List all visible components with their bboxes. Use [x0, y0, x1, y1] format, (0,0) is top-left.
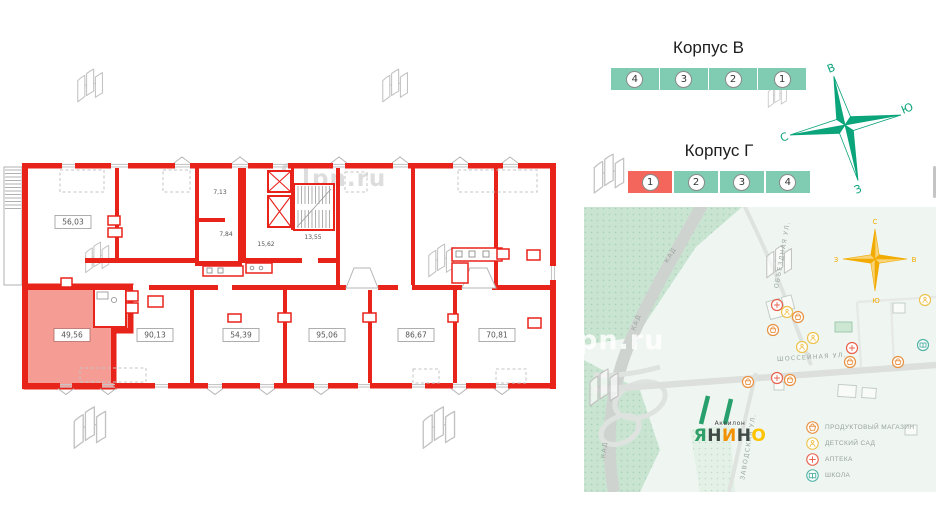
- section-v-4[interactable]: 4: [611, 68, 659, 90]
- room-label[interactable]: 70,81: [479, 329, 515, 342]
- svg-text:90,13: 90,13: [144, 331, 166, 340]
- map-watermark: pn.ru: [584, 325, 664, 356]
- building-sketch-icon: [74, 407, 105, 448]
- room-label[interactable]: 56,03: [55, 216, 91, 229]
- school-book-icon: [806, 469, 819, 482]
- map-compass-south: Ю: [872, 297, 880, 305]
- room-label: 7,84: [219, 231, 233, 238]
- wardrobe-sketch-icon: [86, 242, 109, 272]
- legend-item-pharmacy: АПТЕКА: [806, 453, 936, 466]
- basket-poi-icon: [768, 325, 779, 336]
- building-sketch-icon: [78, 69, 103, 102]
- stairs: [294, 184, 334, 230]
- basket-icon: [806, 421, 819, 434]
- legend-label: АПТЕКА: [825, 456, 853, 463]
- legend-item-school: ШКОЛА: [806, 469, 936, 482]
- building-sketch-icon: [383, 69, 408, 102]
- section-g-2[interactable]: 2: [674, 171, 718, 193]
- section-v-3[interactable]: 3: [660, 68, 708, 90]
- bathroom: [94, 289, 126, 327]
- legend-label: ПРОДУКТОВЫЙ МАГАЗИН: [825, 424, 914, 431]
- section-g-3[interactable]: 3: [720, 171, 764, 193]
- section-number: 3: [733, 174, 750, 191]
- pharmacy-cross-icon: [806, 453, 819, 466]
- section-g-4[interactable]: 4: [766, 171, 810, 193]
- elevator-shafts: [268, 171, 291, 227]
- section-number: 1: [774, 71, 791, 88]
- logo-letter: Н: [737, 426, 752, 446]
- section-g-1-active[interactable]: 1: [628, 171, 672, 193]
- legend-label: ДЕТСКИЙ САД: [825, 440, 875, 447]
- basket-poi-icon: [845, 357, 856, 368]
- floorplan: 56,03 49,56 90,13 54,39 95,06 86,67: [4, 157, 556, 395]
- svg-text:70,81: 70,81: [486, 331, 508, 340]
- section-number: 4: [779, 174, 796, 191]
- room-label: 15,62: [257, 241, 274, 248]
- section-v-2[interactable]: 2: [709, 68, 757, 90]
- section-v-1[interactable]: 1: [758, 68, 806, 90]
- basket-poi-icon: [793, 312, 804, 323]
- section-number: 2: [725, 71, 742, 88]
- map-compass-east: В: [912, 256, 917, 264]
- complex-name: ЯНИНО: [682, 427, 778, 445]
- svg-text:56,03: 56,03: [62, 218, 84, 227]
- compass-label-east: В: [825, 61, 837, 76]
- page: pn.ru: [0, 0, 936, 527]
- building-bar-g: 1 2 3 4: [628, 171, 810, 193]
- building-sketch-icon: [423, 407, 454, 448]
- compass-label-south: Ю: [899, 100, 915, 117]
- basket-poi-icon: [785, 375, 796, 386]
- legend-item-grocery: ПРОДУКТОВЫЙ МАГАЗИН: [806, 421, 936, 434]
- room-label: 13,55: [304, 234, 321, 241]
- building-bar-v: 4 3 2 1: [611, 68, 806, 90]
- legend-item-kindergarten: ДЕТСКИЙ САД: [806, 437, 936, 450]
- logo-letter: И: [722, 426, 737, 446]
- basket-poi-icon: [893, 357, 904, 368]
- building-title-v: Корпус В: [611, 38, 806, 58]
- building-title-g: Корпус Г: [628, 141, 810, 161]
- legend-label: ШКОЛА: [825, 472, 850, 479]
- wardrobe-sketch-icon: [429, 244, 454, 277]
- room-label: 7,13: [213, 189, 227, 196]
- logo-letter: Я: [694, 426, 708, 446]
- compass-label-west: З: [852, 182, 863, 197]
- svg-text:86,67: 86,67: [405, 331, 427, 340]
- room-label[interactable]: 49,56: [54, 329, 90, 342]
- map-compass-west: З: [834, 256, 839, 264]
- kindergarten-icon: [806, 437, 819, 450]
- room-label[interactable]: 86,67: [398, 329, 434, 342]
- balcony-outline: [4, 167, 22, 285]
- svg-text:95,06: 95,06: [316, 331, 338, 340]
- room-label[interactable]: 54,39: [223, 329, 259, 342]
- logo-letter: Н: [707, 426, 722, 446]
- section-number: 2: [688, 174, 705, 191]
- map-compass-north: С: [873, 218, 878, 226]
- map-legend: ПРОДУКТОВЫЙ МАГАЗИН ДЕТСКИЙ САД АПТЕКА Ш…: [806, 421, 936, 485]
- svg-text:49,56: 49,56: [61, 331, 83, 340]
- watermark-text: pn.ru: [584, 325, 664, 356]
- room-label[interactable]: 95,06: [309, 329, 345, 342]
- complex-logo: Аквилон ЯНИНО: [682, 420, 778, 445]
- section-number: 3: [675, 71, 692, 88]
- logo-letter: О: [751, 426, 766, 446]
- section-number: 1: [642, 174, 659, 191]
- room-label[interactable]: 90,13: [137, 329, 173, 342]
- section-number: 4: [626, 71, 643, 88]
- basket-poi-icon: [743, 377, 754, 388]
- svg-text:54,39: 54,39: [230, 331, 252, 340]
- building-sketch-icon: [594, 154, 623, 193]
